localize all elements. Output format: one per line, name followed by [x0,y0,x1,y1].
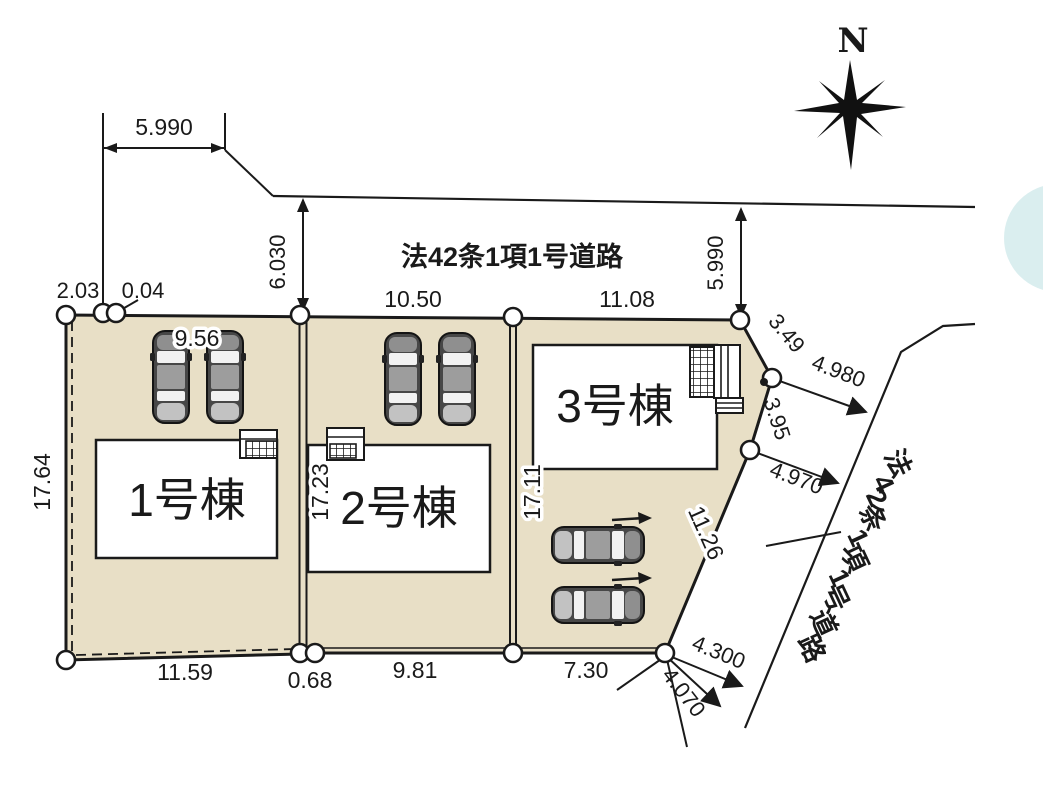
dim-lot1-bottom: 11.59 [157,659,213,685]
building-1-label: 1号棟 [128,474,246,526]
north-label: N [837,21,868,61]
building-3: 3号棟 [533,345,743,469]
site-plan-canvas: 1号棟 2号棟 3号棟 [0,0,1043,787]
dim-tl-b: 0.04 [122,278,165,303]
entry-steps-3 [716,398,743,413]
road-top-label: 法42条1項1号道路 [401,241,624,272]
dim-lot3-top: 11.08 [599,286,655,312]
dim-b23-boundary: 17.11 [519,464,545,520]
dim-lot2-bottom: 9.81 [393,657,438,683]
car-lot3-a [552,524,644,566]
dim-road-width-left: 6.030 [265,234,290,289]
car-lot2-a [382,333,424,425]
building-3-label: 3号棟 [556,380,674,432]
dim-tl-a: 2.03 [57,278,100,303]
dim-left-side: 17.64 [29,453,55,511]
dim-road-width-right: 5.990 [703,235,728,290]
dim-lot3-bottom: 7.30 [564,657,609,683]
building-1: 1号棟 [96,430,277,558]
car-lot3-b [552,584,644,626]
site-plan: 1号棟 2号棟 3号棟 [0,0,1043,787]
dim-bottom-gap: 0.68 [288,667,333,693]
entry-porch-3 [714,345,740,398]
building-2: 2号棟 [308,428,490,572]
dim-top-setback: 5.990 [135,114,193,140]
building-2-label: 2号棟 [340,482,458,534]
balcony-3 [690,347,714,397]
dim-lot1-top: 9.56 [175,325,220,351]
dim-lot2-top: 10.50 [384,286,442,312]
car-lot2-b [436,333,478,425]
dim-b12-boundary: 17.23 [307,463,333,521]
